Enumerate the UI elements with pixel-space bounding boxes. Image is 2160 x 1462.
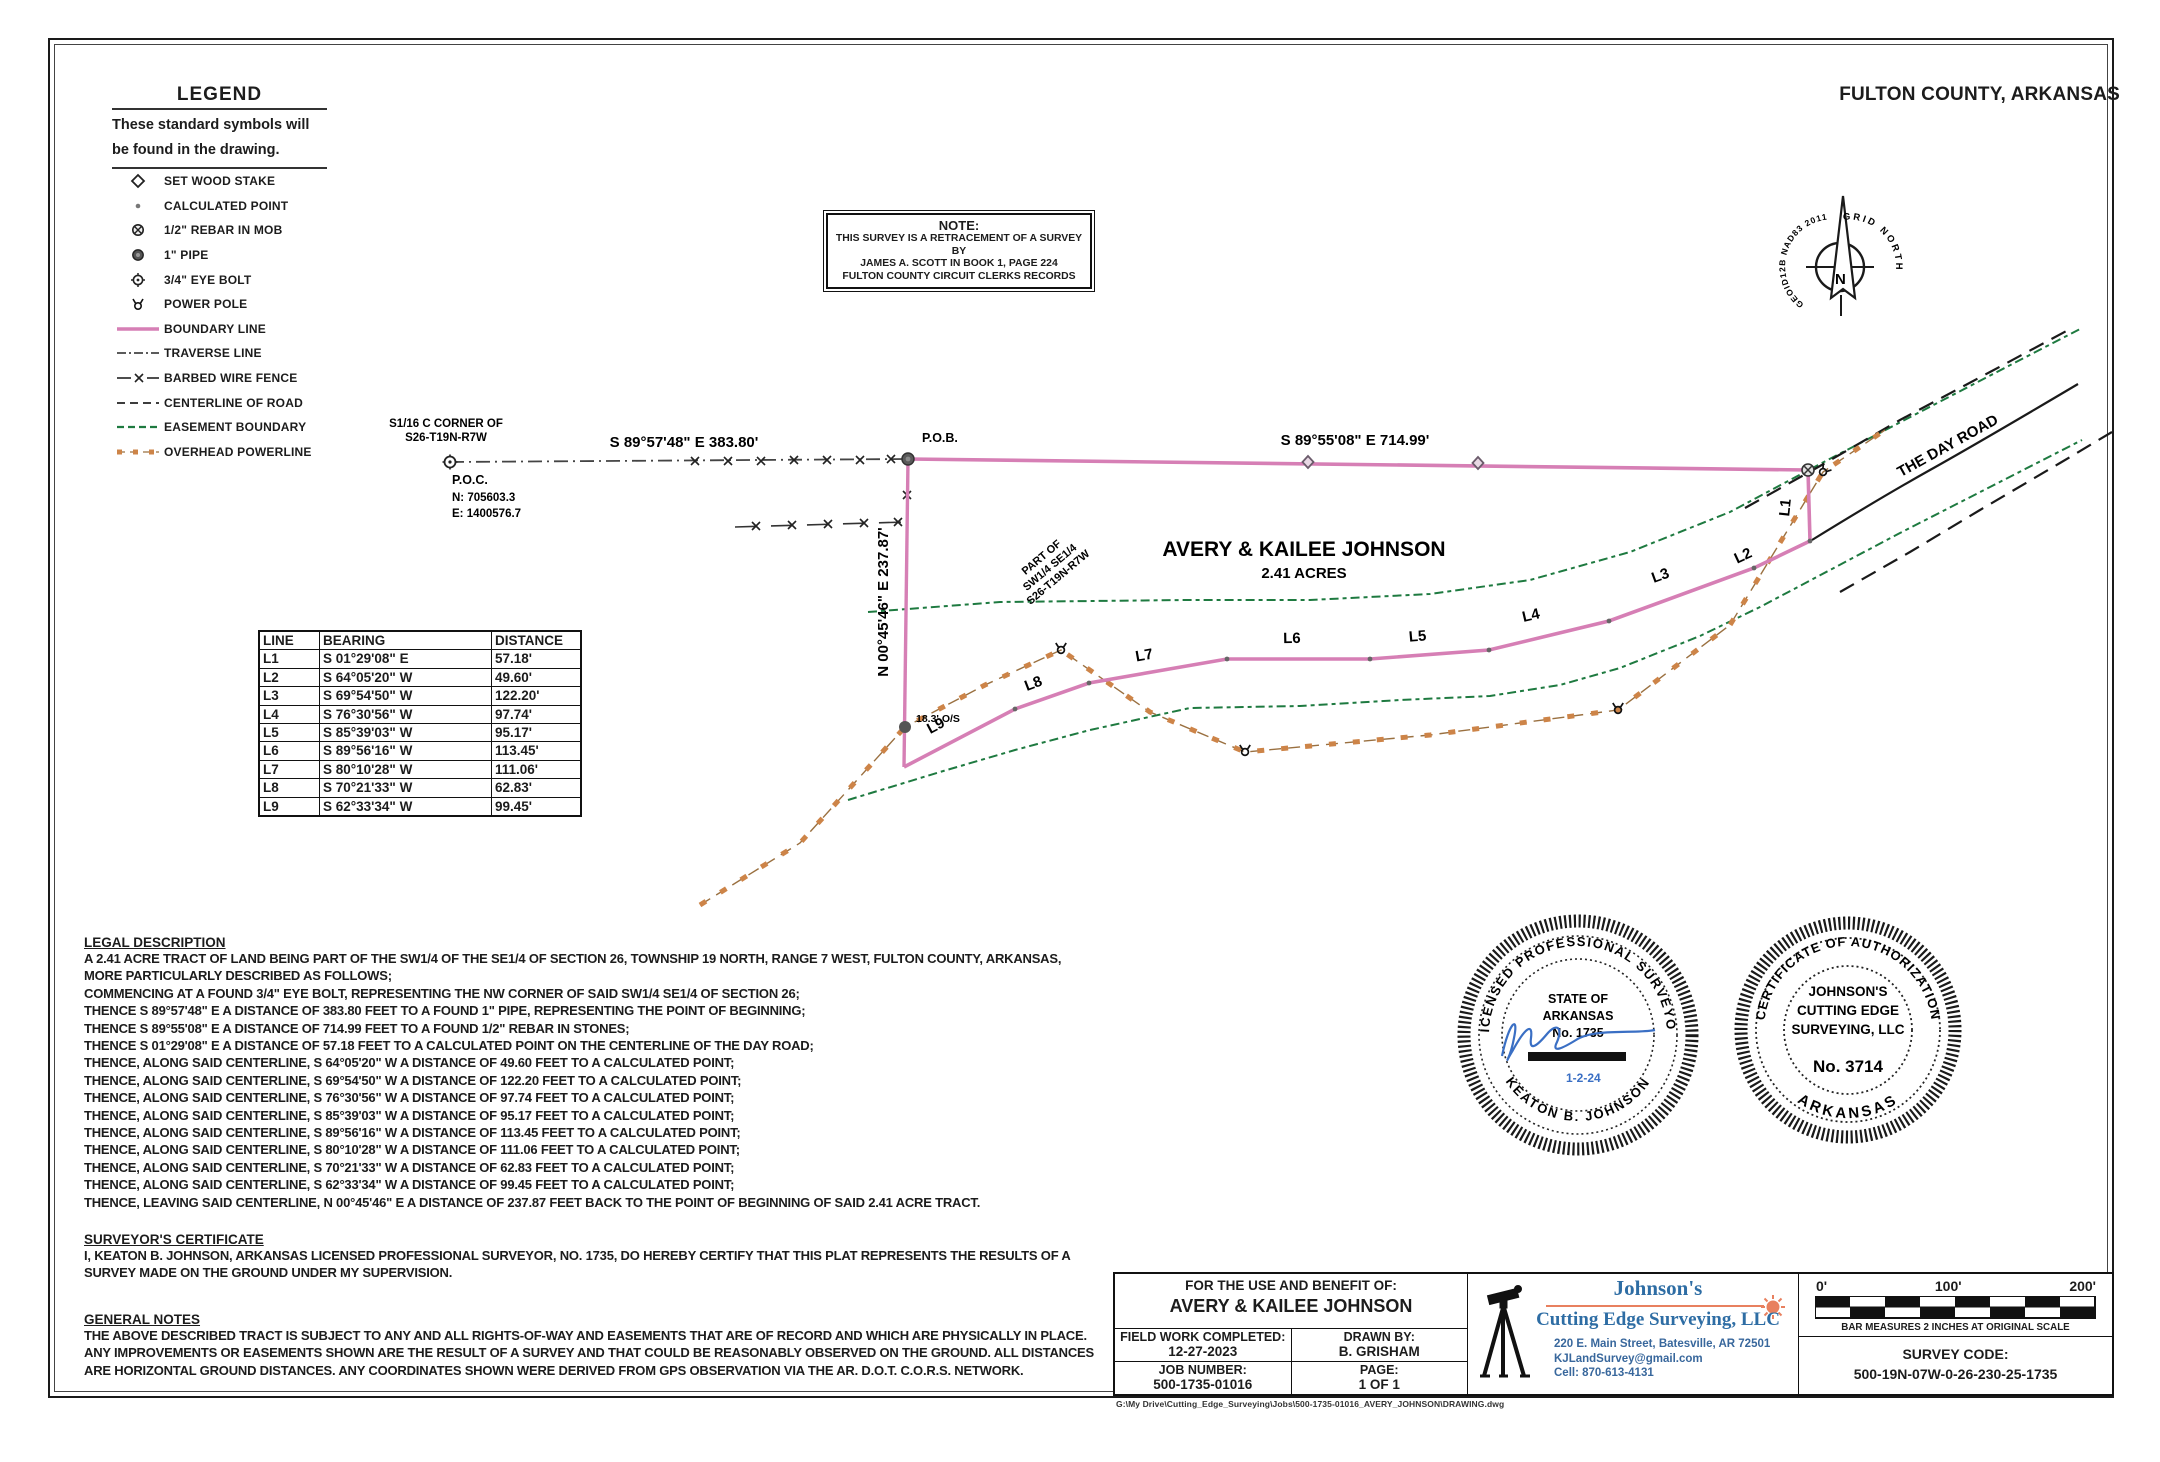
wood-stake-icon bbox=[1303, 456, 1314, 468]
line-bearing: S 85°39'03" W bbox=[320, 724, 492, 741]
legend-title: LEGEND bbox=[112, 84, 327, 110]
west-line-label: N 00°45'46" E 237.87' bbox=[875, 527, 892, 677]
certificate-line: I, KEATON B. JOHNSON, ARKANSAS LICENSED … bbox=[84, 1247, 1071, 1264]
note-line: FULTON COUNTY CIRCUIT CLERKS RECORDS bbox=[830, 271, 1088, 284]
title-block: FOR THE USE AND BENEFIT OF: AVERY & KAIL… bbox=[1113, 1272, 2114, 1396]
legal-description-line: THENCE, LEAVING SAID CENTERLINE, N 00°45… bbox=[84, 1194, 1061, 1211]
note-box: NOTE: THIS SURVEY IS A RETRACEMENT OF A … bbox=[826, 213, 1092, 289]
benefit-name: AVERY & KAILEE JOHNSON bbox=[1115, 1296, 1467, 1317]
company-phone: Cell: 870-613-4131 bbox=[1554, 1366, 1770, 1381]
surveyors-certificate: SURVEYOR'S CERTIFICATE I, KEATON B. JOHN… bbox=[84, 1232, 1071, 1282]
line-table-row: L8 S 70°21'33" W 62.83' bbox=[260, 778, 580, 796]
surveyors-certificate-heading: SURVEYOR'S CERTIFICATE bbox=[84, 1232, 1071, 1247]
pipe-icon bbox=[112, 247, 164, 263]
calculated-points bbox=[1013, 539, 1813, 712]
line-id: L4 bbox=[260, 706, 320, 723]
scale-ticks: 0'100'200' bbox=[1816, 1278, 2096, 1294]
line-distance: 113.45' bbox=[492, 742, 580, 759]
line-distance: 122.20' bbox=[492, 687, 580, 704]
scale-divider bbox=[1799, 1336, 2112, 1337]
legal-description-line: MORE PARTICULARLY DESCRIBED AS FOLLOWS; bbox=[84, 967, 1061, 984]
legal-description: LEGAL DESCRIPTION A 2.41 ACRE TRACT OF L… bbox=[84, 935, 1061, 1211]
barbed-wire-fence-icon bbox=[112, 370, 164, 386]
corner-label: S26-T19N-R7W bbox=[405, 432, 487, 444]
page-cell: PAGE: 1 OF 1 bbox=[1292, 1362, 1468, 1394]
authorization-seal: CERTIFICATE OF AUTHORIZATION ARKANSAS JO… bbox=[1741, 923, 1955, 1137]
svg-text:L4: L4 bbox=[1521, 605, 1543, 626]
easement-lower-line bbox=[848, 440, 2082, 800]
power-pole-icon bbox=[1240, 745, 1250, 755]
legal-description-line: COMMENCING AT A FOUND 3/4" EYE BOLT, REP… bbox=[84, 985, 1061, 1002]
legend-subtitle: These standard symbols will be found in … bbox=[112, 110, 327, 169]
pob-label: P.O.B. bbox=[922, 431, 958, 445]
line-distance: 49.60' bbox=[492, 669, 580, 686]
bearing-west-label: S 89°57'48" E 383.80' bbox=[610, 434, 759, 451]
company-contact: 220 E. Main Street, Batesville, AR 72501… bbox=[1554, 1337, 1770, 1381]
line-table: LINEBEARINGDISTANCE L1 S 01°29'08" E 57.… bbox=[258, 630, 582, 817]
svg-text:L7: L7 bbox=[1134, 646, 1154, 666]
surveyor-tripod-icon bbox=[1470, 1278, 1540, 1390]
legend-item: 1" PIPE bbox=[112, 243, 327, 268]
part-of-label: PART OF SW1/4 SE1/4 S26-T19N-R7W bbox=[1008, 528, 1093, 608]
boundary-road-line bbox=[904, 470, 1810, 767]
svg-text:ARKANSAS: ARKANSAS bbox=[1543, 1009, 1614, 1023]
traverse-line bbox=[450, 459, 908, 462]
road-label: THE DAY ROAD bbox=[1894, 411, 2001, 481]
line-distance: 57.18' bbox=[492, 650, 580, 667]
legal-description-line: THENCE, ALONG SAID CENTERLINE, S 80°10'2… bbox=[84, 1141, 1061, 1158]
line-bearing: S 64°05'20" W bbox=[320, 669, 492, 686]
poc-easting: E: 1400576.7 bbox=[452, 508, 521, 520]
benefit-label: FOR THE USE AND BENEFIT OF: bbox=[1115, 1278, 1467, 1293]
company-name-2: Cutting Edge Surveying, LLC bbox=[1530, 1309, 1786, 1331]
legend-item: 1/2" REBAR IN MOB bbox=[112, 218, 327, 243]
line-table-row: L3 S 69°54'50" W 122.20' bbox=[260, 686, 580, 704]
company-email: KJLandSurvey@gmail.com bbox=[1554, 1352, 1770, 1367]
line-id: L5 bbox=[260, 724, 320, 741]
note-title: NOTE: bbox=[830, 218, 1088, 233]
general-notes-line: THE ABOVE DESCRIBED TRACT IS SUBJECT TO … bbox=[84, 1327, 1094, 1344]
legal-description-line: THENCE, ALONG SAID CENTERLINE, S 69°54'5… bbox=[84, 1072, 1061, 1089]
company-block: Johnson's Cutting Edge Surveying, LLC 22… bbox=[1467, 1274, 1798, 1394]
centerline-of-road-icon bbox=[112, 395, 164, 411]
wood-stake-icon bbox=[112, 173, 164, 189]
offset-point bbox=[899, 721, 911, 733]
general-notes-heading: GENERAL NOTES bbox=[84, 1312, 1094, 1327]
easement-boundary-icon bbox=[112, 419, 164, 435]
drawn-by-cell: DRAWN BY: B. GRISHAM bbox=[1292, 1329, 1468, 1361]
line-table-row: L6 S 89°56'16" W 113.45' bbox=[260, 741, 580, 759]
job-number-cell: JOB NUMBER: 500-1735-01016 bbox=[1115, 1362, 1292, 1394]
line-id: L8 bbox=[260, 779, 320, 796]
line-bearing: S 62°33'34" W bbox=[320, 798, 492, 815]
general-notes: GENERAL NOTES THE ABOVE DESCRIBED TRACT … bbox=[84, 1312, 1094, 1379]
line-id: L9 bbox=[260, 798, 320, 815]
benefit-cell: FOR THE USE AND BENEFIT OF: AVERY & KAIL… bbox=[1115, 1274, 1467, 1329]
eye-bolt-icon bbox=[112, 272, 164, 288]
road-edge-lower-line bbox=[1840, 432, 2112, 592]
file-path: G:\My Drive\Cutting_Edge_Surveying\Jobs\… bbox=[1116, 1399, 1504, 1409]
line-distance: 97.74' bbox=[492, 706, 580, 723]
line-table-row: L9 S 62°33'34" W 99.45' bbox=[260, 797, 580, 815]
plat-sheet: FULTON COUNTY, ARKANSAS bbox=[0, 0, 2160, 1462]
company-name: Johnson's bbox=[1538, 1276, 1778, 1301]
eye-bolt-icon bbox=[443, 455, 458, 470]
line-id: L7 bbox=[260, 761, 320, 778]
line-id: L2 bbox=[260, 669, 320, 686]
line-id: L3 bbox=[260, 687, 320, 704]
legend-item: CENTERLINE OF ROAD bbox=[112, 390, 327, 415]
auth-arc-bottom: ARKANSAS bbox=[1795, 1091, 1902, 1123]
boundary-line-icon bbox=[112, 321, 164, 337]
legend-item: OVERHEAD POWERLINE bbox=[112, 440, 327, 465]
bearing-east-label: S 89°55'08" E 714.99' bbox=[1281, 432, 1430, 449]
company-address: 220 E. Main Street, Batesville, AR 72501 bbox=[1554, 1337, 1770, 1352]
legend-item: POWER POLE bbox=[112, 292, 327, 317]
legal-description-line: THENCE, ALONG SAID CENTERLINE, S 70°21'3… bbox=[84, 1159, 1061, 1176]
calculated-point-icon bbox=[112, 198, 164, 214]
corner-label: S1/16 C CORNER OF bbox=[389, 418, 503, 430]
general-notes-line: ANY IMPROVEMENTS OR EASEMENTS SHOWN ARE … bbox=[84, 1344, 1094, 1361]
north-n-label: N bbox=[1835, 271, 1846, 288]
line-table-row: L4 S 76°30'56" W 97.74' bbox=[260, 705, 580, 723]
legend-item: CALCULATED POINT bbox=[112, 194, 327, 219]
power-pole-icon bbox=[1056, 643, 1066, 653]
line-table-row: L5 S 85°39'03" W 95.17' bbox=[260, 723, 580, 741]
overhead-powerline-icon bbox=[112, 444, 164, 460]
boundary-west-line bbox=[904, 459, 908, 767]
legal-description-line: THENCE S 89°55'08" E A DISTANCE OF 714.9… bbox=[84, 1020, 1061, 1037]
owner-label: AVERY & KAILEE JOHNSON bbox=[1162, 538, 1445, 561]
legal-description-line: THENCE, ALONG SAID CENTERLINE, S 85°39'0… bbox=[84, 1107, 1061, 1124]
north-arrow: N GEOID12B NAD83 2011 GRID NORTH bbox=[1777, 196, 1904, 316]
svg-text:JOHNSON'S: JOHNSON'S bbox=[1809, 984, 1888, 999]
legal-description-line: THENCE, ALONG SAID CENTERLINE, S 76°30'5… bbox=[84, 1089, 1061, 1106]
power-pole-icon bbox=[112, 296, 164, 312]
svg-text:ARKANSAS: ARKANSAS bbox=[1795, 1091, 1902, 1123]
line-bearing: S 70°21'33" W bbox=[320, 779, 492, 796]
seal-date: 1-2-24 bbox=[1566, 1071, 1601, 1085]
barbed-wire-fence-line bbox=[735, 522, 906, 527]
svg-text:STATE OF: STATE OF bbox=[1548, 992, 1608, 1006]
general-notes-line: ARE HORIZONTAL GROUND DISTANCES. ANY COO… bbox=[84, 1362, 1094, 1379]
svg-text:SURVEYING, LLC: SURVEYING, LLC bbox=[1791, 1022, 1904, 1037]
title-block-left: FOR THE USE AND BENEFIT OF: AVERY & KAIL… bbox=[1115, 1274, 1467, 1394]
scale-note: BAR MEASURES 2 INCHES AT ORIGINAL SCALE bbox=[1799, 1322, 2112, 1333]
scale-bar bbox=[1815, 1296, 2097, 1320]
rebar-icon bbox=[1802, 464, 1814, 476]
line-distance: 95.17' bbox=[492, 724, 580, 741]
survey-code: 500-19N-07W-0-26-230-25-1735 bbox=[1799, 1366, 2112, 1382]
geoid-label: GEOID12B NAD83 2011 bbox=[1777, 212, 1828, 311]
line-id: L6 bbox=[260, 742, 320, 759]
legend-item: BARBED WIRE FENCE bbox=[112, 366, 327, 391]
poc-northing: N: 705603.3 bbox=[452, 492, 515, 504]
traverse-line-icon bbox=[112, 345, 164, 361]
svg-text:L8: L8 bbox=[1022, 673, 1044, 695]
line-table-row: L1 S 01°29'08" E 57.18' bbox=[260, 649, 580, 667]
field-work-cell: FIELD WORK COMPLETED: 12-27-2023 bbox=[1115, 1329, 1292, 1361]
legend-item: TRAVERSE LINE bbox=[112, 341, 327, 366]
legal-description-line: THENCE, ALONG SAID CENTERLINE, S 64°05'2… bbox=[84, 1054, 1061, 1071]
legal-description-line: A 2.41 ACRE TRACT OF LAND BEING PART OF … bbox=[84, 950, 1061, 967]
svg-text:No. 3714: No. 3714 bbox=[1813, 1057, 1883, 1076]
survey-code-label: SURVEY CODE: bbox=[1799, 1346, 2112, 1362]
acreage-label: 2.41 ACRES bbox=[1261, 565, 1346, 582]
legend-item: EASEMENT BOUNDARY bbox=[112, 415, 327, 440]
line-table-header: LINEBEARINGDISTANCE bbox=[260, 632, 580, 649]
legal-description-heading: LEGAL DESCRIPTION bbox=[84, 935, 1061, 950]
legend-item: SET WOOD STAKE bbox=[112, 169, 327, 194]
legend-item: BOUNDARY LINE bbox=[112, 317, 327, 342]
poc-label: P.O.C. bbox=[452, 473, 488, 487]
svg-text:GEOID12B NAD83 2011: GEOID12B NAD83 2011 bbox=[1777, 212, 1828, 311]
line-bearing: S 76°30'56" W bbox=[320, 706, 492, 723]
svg-text:L6: L6 bbox=[1283, 630, 1301, 647]
note-line: THIS SURVEY IS A RETRACEMENT OF A SURVEY… bbox=[830, 233, 1088, 258]
legal-description-line: THENCE, ALONG SAID CENTERLINE, S 62°33'3… bbox=[84, 1176, 1061, 1193]
legend-item: 3/4" EYE BOLT bbox=[112, 267, 327, 292]
legend: LEGEND These standard symbols will be fo… bbox=[112, 84, 327, 464]
line-distance: 111.06' bbox=[492, 761, 580, 778]
svg-text:CUTTING EDGE: CUTTING EDGE bbox=[1797, 1003, 1899, 1018]
line-bearing: S 89°56'16" W bbox=[320, 742, 492, 759]
line-id: L1 bbox=[260, 650, 320, 667]
boundary-north-line bbox=[908, 459, 1808, 470]
svg-text:L1: L1 bbox=[1776, 498, 1795, 517]
svg-text:L2: L2 bbox=[1732, 545, 1755, 568]
line-bearing: S 01°29'08" E bbox=[320, 650, 492, 667]
line-bearing: S 80°10'28" W bbox=[320, 761, 492, 778]
line-bearing: S 69°54'50" W bbox=[320, 687, 492, 704]
line-distance: 99.45' bbox=[492, 798, 580, 815]
note-line: JAMES A. SCOTT IN BOOK 1, PAGE 224 bbox=[830, 258, 1088, 271]
company-divider bbox=[1546, 1305, 1764, 1307]
svg-text:L3: L3 bbox=[1649, 565, 1671, 587]
line-distance: 62.83' bbox=[492, 779, 580, 796]
rebar-icon bbox=[112, 222, 164, 238]
legal-description-line: THENCE S 89°57'48" E A DISTANCE OF 383.8… bbox=[84, 1002, 1061, 1019]
svg-text:L5: L5 bbox=[1408, 627, 1427, 645]
certificate-line: SURVEY MADE ON THE GROUND UNDER MY SUPER… bbox=[84, 1264, 1071, 1281]
scale-block: 0'100'200' BAR MEASURES 2 INCHES AT ORIG… bbox=[1798, 1274, 2112, 1394]
legal-description-line: THENCE S 01°29'08" E A DISTANCE OF 57.18… bbox=[84, 1037, 1061, 1054]
legal-description-line: THENCE, ALONG SAID CENTERLINE, S 89°56'1… bbox=[84, 1124, 1061, 1141]
pipe-icon bbox=[902, 453, 914, 465]
line-table-row: L7 S 80°10'28" W 111.06' bbox=[260, 760, 580, 778]
segment-labels: L1 L2 L3 L4 L5 L6 L7 L8 L9 bbox=[924, 498, 1795, 738]
line-table-row: L2 S 64°05'20" W 49.60' bbox=[260, 668, 580, 686]
